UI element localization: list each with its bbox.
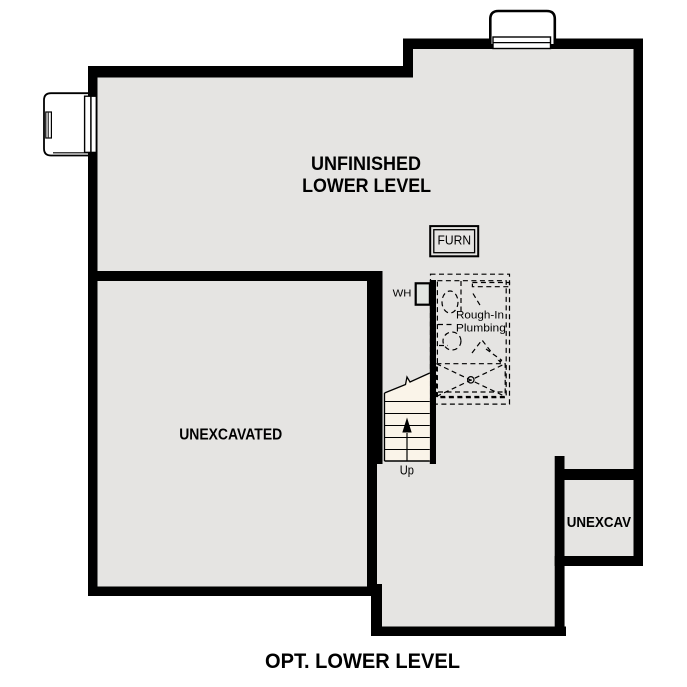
svg-text:OPT. LOWER LEVEL: OPT. LOWER LEVEL — [265, 650, 460, 673]
svg-text:FURN: FURN — [438, 232, 472, 247]
svg-text:UNFINISHED: UNFINISHED — [311, 153, 421, 175]
svg-text:UNEXCAV: UNEXCAV — [567, 515, 632, 531]
svg-text:Plumbing: Plumbing — [456, 323, 506, 335]
svg-text:UNEXCAVATED: UNEXCAVATED — [179, 427, 282, 444]
svg-text:WH: WH — [393, 288, 412, 300]
svg-text:Up: Up — [400, 463, 414, 478]
svg-text:LOWER LEVEL: LOWER LEVEL — [302, 175, 431, 197]
svg-text:Rough-In: Rough-In — [456, 310, 504, 322]
